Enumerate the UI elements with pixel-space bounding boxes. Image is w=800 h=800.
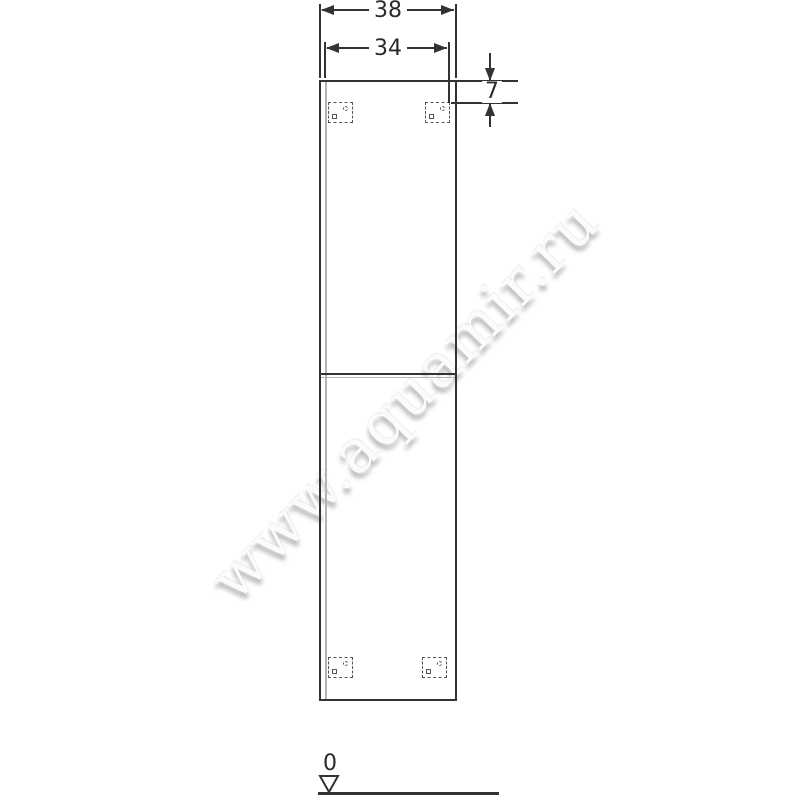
mounting-bracket-top-left <box>328 102 353 123</box>
cabinet-divider-line <box>321 373 455 375</box>
dim-38-arrow-right-icon <box>441 5 454 15</box>
dim-38-label: 38 <box>371 0 405 22</box>
mounting-bracket-top-right <box>425 102 450 123</box>
door-gap-line <box>325 82 327 699</box>
bracket-hole-icon <box>429 114 434 119</box>
dim-34-arrow-left-icon <box>326 43 339 53</box>
cabinet-divider-shadow-line <box>321 377 455 378</box>
cabinet-outline <box>319 80 457 701</box>
bracket-hole-icon <box>437 661 442 666</box>
dim-38-extension-right <box>455 4 457 78</box>
mounting-bracket-bottom-left <box>328 657 353 678</box>
bracket-hole-icon <box>332 114 337 119</box>
dim-34-arrow-right-icon <box>434 43 447 53</box>
dim-38-arrow-left-icon <box>321 5 334 15</box>
dim-34-label: 34 <box>371 38 405 60</box>
bracket-hole-icon <box>426 669 431 674</box>
dim-38-extension-left <box>319 4 321 78</box>
datum-zero-label: 0 <box>320 753 340 775</box>
mounting-bracket-bottom-right <box>422 657 447 678</box>
ground-datum-line <box>318 792 499 795</box>
bracket-hole-icon <box>332 669 337 674</box>
technical-drawing: 38 34 7 0 <box>0 0 800 800</box>
bracket-hole-icon <box>343 661 348 666</box>
dim-34-extension-right <box>448 42 450 103</box>
bracket-hole-icon <box>343 106 348 111</box>
dim-7-arrow-up-icon <box>485 103 495 116</box>
dim-7-label: 7 <box>482 81 502 103</box>
bracket-hole-icon <box>440 106 445 111</box>
